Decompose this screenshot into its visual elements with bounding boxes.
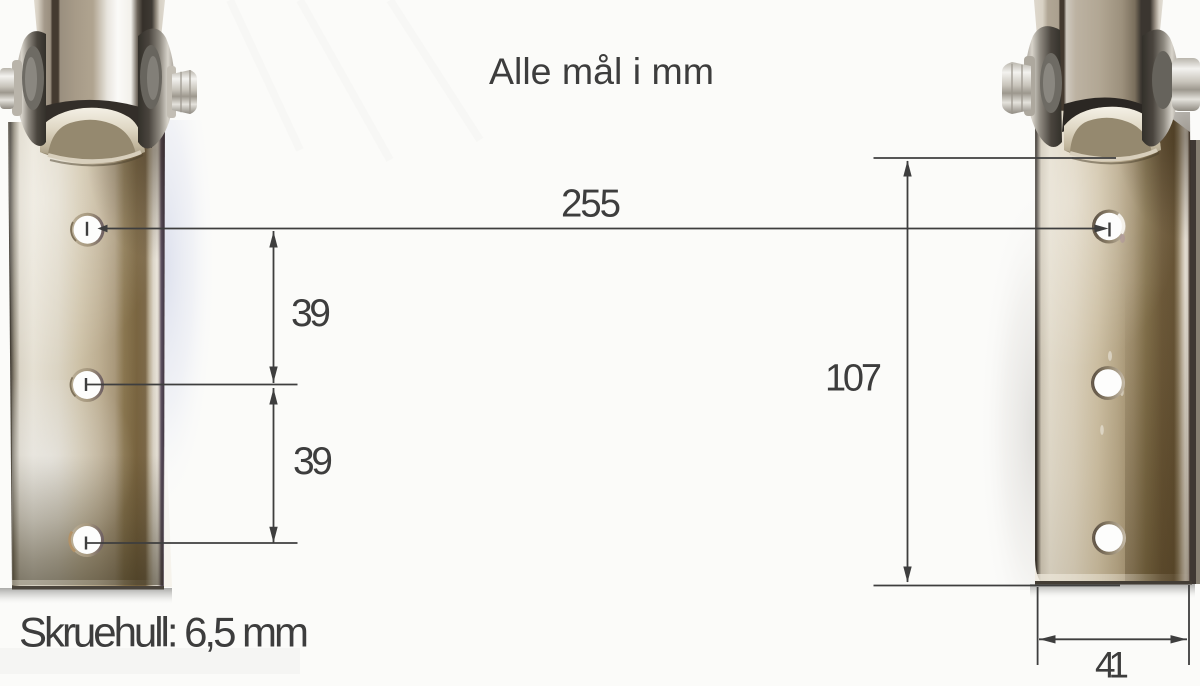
svg-text:107: 107 — [825, 358, 882, 400]
svg-text:Alle mål i mm: Alle mål i mm — [489, 50, 714, 92]
svg-text:Skruehull: 6,5 mm: Skruehull: 6,5 mm — [19, 609, 309, 656]
svg-text:39: 39 — [293, 440, 333, 483]
svg-text:39: 39 — [291, 292, 331, 335]
svg-text:41: 41 — [1095, 645, 1129, 686]
svg-text:255: 255 — [561, 183, 621, 226]
